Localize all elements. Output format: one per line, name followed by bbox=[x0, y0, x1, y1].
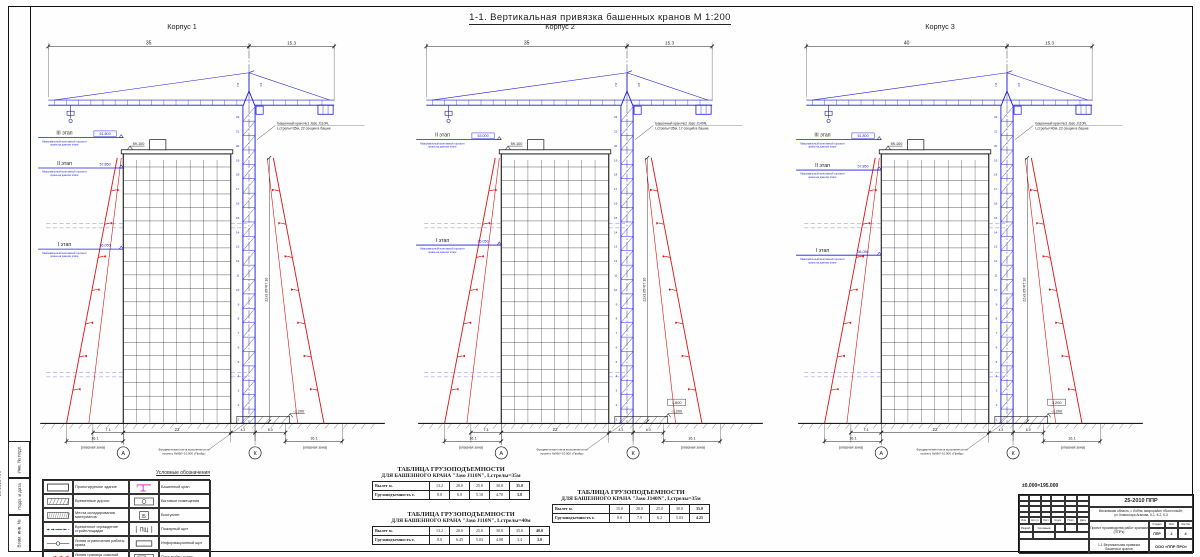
svg-text:22: 22 bbox=[553, 427, 558, 432]
wc-symbol-icon: Б bbox=[131, 510, 157, 521]
table-cell: 40.0 bbox=[530, 526, 550, 535]
table-cell: 5.10 bbox=[470, 490, 490, 499]
svg-text:крана на данном этапе: крана на данном этапе bbox=[50, 255, 79, 258]
load-table-subtitle: ДЛЯ БАШЕННОГО КРАНА "Jaso J140N", Lстрел… bbox=[552, 496, 710, 502]
svg-text:I этап: I этап bbox=[58, 242, 72, 248]
svg-text:1.800: 1.800 bbox=[672, 401, 682, 405]
svg-text:14: 14 bbox=[994, 230, 998, 234]
svg-text:4: 4 bbox=[996, 374, 998, 378]
svg-text:крана на данном этапе: крана на данном этапе bbox=[50, 144, 79, 147]
svg-text:61.800: 61.800 bbox=[857, 134, 868, 138]
svg-text:20: 20 bbox=[994, 144, 998, 148]
frame-strip: Инв. № подл. bbox=[8, 441, 30, 478]
svg-text:13: 13 bbox=[614, 245, 618, 249]
svg-text:15: 15 bbox=[614, 216, 618, 220]
svg-text:17: 17 bbox=[236, 187, 240, 191]
svg-text:16: 16 bbox=[614, 202, 618, 206]
svg-text:4.3: 4.3 bbox=[999, 428, 1004, 432]
svg-text:7.1: 7.1 bbox=[863, 428, 868, 432]
table-cell: 7.9 bbox=[630, 513, 650, 522]
table-cell: 30.0 bbox=[490, 481, 510, 490]
svg-text:крана на данном этапе: крана на данном этапе bbox=[808, 146, 837, 149]
tb-cell bbox=[1055, 532, 1089, 540]
building bbox=[121, 140, 233, 424]
svg-text:40: 40 bbox=[904, 41, 910, 47]
svg-text:2: 2 bbox=[238, 403, 240, 407]
svg-text:6.0: 6.0 bbox=[646, 428, 651, 432]
svg-text:59.100: 59.100 bbox=[891, 142, 903, 146]
svg-text:7.1: 7.1 bbox=[105, 428, 110, 432]
svg-text:III этап: III этап bbox=[56, 131, 72, 137]
crane-symbol-icon bbox=[131, 482, 157, 493]
svg-text:10: 10 bbox=[614, 288, 618, 292]
svg-text:59.100: 59.100 bbox=[511, 142, 523, 146]
svg-text:4: 4 bbox=[238, 374, 240, 378]
load-table-subtitle: ДЛЯ БАШЕННОГО КРАНА "Jaso J110N", Lстрел… bbox=[372, 473, 530, 479]
table-cell: 25.0 bbox=[470, 526, 490, 535]
load-table-3: ТАБЛИЦА ГРУЗОПОДЪЕМНОСТИДЛЯ БАШЕННОГО КР… bbox=[552, 489, 710, 523]
svg-text:7.8: 7.8 bbox=[994, 82, 998, 87]
svg-text:I этап: I этап bbox=[436, 238, 450, 244]
svg-text:36.050: 36.050 bbox=[857, 250, 868, 254]
tb-cell bbox=[1033, 532, 1055, 540]
legend-label: Линия ограничения работы крана bbox=[73, 536, 129, 550]
svg-text:18: 18 bbox=[236, 173, 240, 177]
svg-text:57.850: 57.850 bbox=[99, 163, 110, 167]
rev-header: №док. bbox=[1051, 517, 1065, 524]
table-cell: 5.03 bbox=[470, 535, 490, 544]
svg-text:12: 12 bbox=[994, 259, 998, 263]
svg-text:22: 22 bbox=[933, 427, 938, 432]
object-name: Московская область, г. Лобня, микрорайон… bbox=[1089, 507, 1193, 521]
table-cell: 4.25 bbox=[690, 513, 710, 522]
stage-value: ППР bbox=[1149, 528, 1165, 539]
svg-text:21: 21 bbox=[994, 130, 998, 134]
svg-text:18: 18 bbox=[994, 173, 998, 177]
corpus-3: Корпус 34015.359.10012345678910111213141… bbox=[788, 20, 1153, 467]
svg-text:21: 21 bbox=[614, 130, 618, 134]
svg-text:2: 2 bbox=[996, 403, 998, 407]
svg-text:7: 7 bbox=[616, 331, 618, 335]
table-cell: 6.0 bbox=[450, 490, 470, 499]
svg-text:-2.200: -2.200 bbox=[1051, 410, 1062, 414]
svg-text:А: А bbox=[121, 451, 125, 457]
svg-text:6: 6 bbox=[996, 345, 998, 349]
load-table-grid: Вылет м.15.020.025.030.035.0Грузоподъемн… bbox=[552, 504, 710, 523]
svg-text:4.3: 4.3 bbox=[241, 428, 246, 432]
svg-text:9: 9 bbox=[996, 302, 998, 306]
table-row-label: Вылет м. bbox=[553, 504, 610, 513]
legend-label: Бытовые помещения bbox=[159, 494, 211, 508]
table-cell: 8.0 bbox=[610, 513, 630, 522]
svg-text:1: 1 bbox=[616, 417, 618, 421]
table-cell: 30.0 bbox=[670, 504, 690, 513]
fire-symbol-icon: ПЩ bbox=[131, 524, 157, 535]
svg-text:Максимальный монтажный горизон: Максимальный монтажный горизонт bbox=[420, 247, 465, 251]
svg-text:(опасная зона): (опасная зона) bbox=[81, 445, 105, 449]
svg-text:8: 8 bbox=[616, 317, 618, 321]
table-cell: 13.2 bbox=[430, 481, 450, 490]
project-code: 25-2010 ППР bbox=[1089, 495, 1193, 507]
svg-text:I этап: I этап bbox=[816, 248, 830, 254]
svg-text:22: 22 bbox=[994, 115, 998, 119]
table-cell: 8.0 bbox=[430, 535, 450, 544]
svg-text:-2.200: -2.200 bbox=[293, 410, 304, 414]
svg-text:3: 3 bbox=[238, 389, 240, 393]
svg-text:проекту №96/У-10.000 «Прайд»: проекту №96/У-10.000 «Прайд» bbox=[163, 451, 206, 455]
sheet-label: Лист bbox=[1165, 521, 1178, 528]
legend-symbol bbox=[43, 550, 73, 557]
svg-text:Башенный кран №2 Jaso J140N,: Башенный кран №2 Jaso J140N, bbox=[655, 121, 707, 125]
svg-text:Максимальный монтажный горизон: Максимальный монтажный горизонт bbox=[800, 172, 845, 176]
table-row-label: Грузоподъемность т. bbox=[553, 513, 610, 522]
table-cell: 6.45 bbox=[450, 535, 470, 544]
frame-strip-label: Инв. № подл. bbox=[17, 445, 22, 473]
building bbox=[879, 140, 991, 424]
fence-symbol-icon bbox=[45, 524, 71, 535]
legend-symbol bbox=[43, 494, 73, 508]
info-symbol-icon bbox=[131, 538, 157, 549]
sheet-number: 2 bbox=[1165, 528, 1178, 539]
svg-text:16.1: 16.1 bbox=[91, 437, 98, 441]
svg-text:Б: Б bbox=[142, 513, 146, 519]
limit-symbol-icon bbox=[45, 538, 71, 549]
tb-cell bbox=[1077, 524, 1089, 532]
table-cell: 6.2 bbox=[650, 513, 670, 522]
svg-text:7.8: 7.8 bbox=[236, 82, 240, 87]
svg-text:-2.200: -2.200 bbox=[671, 410, 682, 414]
legend-symbol: Б bbox=[129, 508, 159, 522]
svg-text:14: 14 bbox=[614, 230, 618, 234]
tb-cell bbox=[1055, 524, 1065, 532]
svg-text:8: 8 bbox=[238, 317, 240, 321]
frame-strips: Инв. № подл.Подп. и датаВзам. инв. № bbox=[8, 441, 30, 552]
svg-text:3.200: 3.200 bbox=[1052, 401, 1062, 405]
svg-text:57.850: 57.850 bbox=[857, 165, 868, 169]
rev-header: Изм. bbox=[1019, 517, 1029, 524]
svg-text:(опасная зона): (опасная зона) bbox=[839, 445, 863, 449]
svg-text:ПЩ: ПЩ bbox=[140, 527, 149, 533]
svg-text:15: 15 bbox=[994, 216, 998, 220]
svg-text:10: 10 bbox=[236, 288, 240, 292]
svg-text:11: 11 bbox=[994, 273, 997, 277]
svg-text:20: 20 bbox=[236, 144, 240, 148]
legend-symbol bbox=[129, 494, 159, 508]
load-table-subtitle: ДЛЯ БАШЕННОГО КРАНА "Jaso J110N", Lстрел… bbox=[372, 518, 550, 524]
legend-label: Места складирования материалов bbox=[73, 508, 129, 522]
svg-text:крана на данном этапе: крана на данном этапе bbox=[428, 251, 457, 254]
svg-text:10: 10 bbox=[994, 288, 998, 292]
svg-text:Максимальный монтажный горизон: Максимальный монтажный горизонт bbox=[420, 141, 465, 145]
svg-text:Максимальный монтажный горизон: Максимальный монтажный горизонт bbox=[42, 251, 87, 255]
table-cell: 13.2 bbox=[430, 526, 450, 535]
svg-text:59.100: 59.100 bbox=[133, 142, 145, 146]
svg-text:III этап: III этап bbox=[814, 133, 830, 139]
table-row-label: Вылет м. bbox=[373, 526, 430, 535]
tb-cell bbox=[1019, 532, 1033, 540]
svg-text:15.3: 15.3 bbox=[1045, 41, 1054, 46]
corpus-1: Корпус 13515.359.10012345678910111213141… bbox=[30, 20, 395, 467]
svg-text:6.0: 6.0 bbox=[1026, 428, 1031, 432]
legend-label: Временное ограждение стройплощадки bbox=[73, 522, 129, 536]
legend-symbol bbox=[43, 522, 73, 536]
svg-text:9: 9 bbox=[238, 302, 240, 306]
road-symbol-icon bbox=[45, 496, 71, 507]
svg-text:15: 15 bbox=[236, 216, 240, 220]
svg-text:II этап: II этап bbox=[435, 133, 450, 139]
frame-strip: Взам. инв. № bbox=[8, 515, 30, 552]
svg-text:17: 17 bbox=[994, 187, 998, 191]
drawing-sheet: Инв. № подл.Подп. и датаВзам. инв. № 25-… bbox=[0, 0, 1200, 557]
svg-text:63.000: 63.000 bbox=[477, 134, 488, 138]
svg-text:Корпус 2: Корпус 2 bbox=[545, 22, 575, 31]
object-name-line: ул. Комиссара Агапова, К-1, К-2, К-3 bbox=[1114, 514, 1167, 518]
tb-cell bbox=[1065, 524, 1077, 532]
svg-text:19: 19 bbox=[614, 158, 618, 162]
load-table-grid: Вылет м.13.220.025.030.035.0Грузоподъемн… bbox=[372, 481, 530, 500]
svg-text:проекту №96/У-10.000 «Прайд»: проекту №96/У-10.000 «Прайд» bbox=[541, 451, 584, 455]
svg-text:16.1: 16.1 bbox=[688, 437, 695, 441]
svg-text:3.8: 3.8 bbox=[259, 82, 263, 87]
load-table-title: ТАБЛИЦА ГРУЗОПОДЪЕМНОСТИ bbox=[372, 511, 550, 518]
svg-text:16: 16 bbox=[236, 202, 240, 206]
svg-text:(опасная зона): (опасная зона) bbox=[303, 445, 327, 449]
corpus-drawing: Корпус 13515.359.10012345678910111213141… bbox=[30, 20, 395, 462]
svg-text:21: 21 bbox=[236, 130, 240, 134]
svg-text:11: 11 bbox=[236, 273, 239, 277]
svg-text:3: 3 bbox=[616, 389, 618, 393]
table-cell: 3.4 bbox=[510, 535, 530, 544]
svg-text:15.3: 15.3 bbox=[287, 41, 296, 46]
svg-text:35: 35 bbox=[524, 41, 530, 47]
legend-label: Проектируемое здание bbox=[73, 480, 129, 494]
tb-cell bbox=[1019, 539, 1089, 554]
developer-name: Соловьев bbox=[1033, 524, 1055, 532]
storage-symbol-icon bbox=[45, 510, 71, 521]
rev-header: Кол.уч bbox=[1029, 517, 1041, 524]
svg-text:II этап: II этап bbox=[815, 163, 830, 169]
svg-text:(опасная зона): (опасная зона) bbox=[681, 445, 705, 449]
legend-label: Биотуалет bbox=[159, 508, 211, 522]
legend-label: Информационный щит bbox=[159, 536, 211, 550]
svg-text:(опасная зона): (опасная зона) bbox=[1061, 445, 1085, 449]
datum-note: ±0.000=195.000 bbox=[1022, 483, 1058, 489]
svg-text:(опасная зона): (опасная зона) bbox=[459, 445, 483, 449]
rev-header: Подп. bbox=[1065, 517, 1077, 524]
title-block: 25-2010 ППРМосковская область, г. Лобня,… bbox=[1018, 494, 1194, 553]
legend-symbol bbox=[43, 480, 73, 494]
legend-label: Пожарный щит bbox=[159, 522, 211, 536]
svg-text:Максимальный монтажный горизон: Максимальный монтажный горизонт bbox=[800, 141, 845, 145]
table-cell: 5.03 bbox=[670, 513, 690, 522]
svg-text:7: 7 bbox=[238, 331, 240, 335]
svg-text:4: 4 bbox=[616, 374, 618, 378]
svg-text:20: 20 bbox=[614, 144, 618, 148]
svg-text:8: 8 bbox=[996, 317, 998, 321]
developer-label: Разраб. bbox=[1019, 524, 1033, 532]
svg-text:крана на данном этапе: крана на данном этапе bbox=[50, 174, 79, 177]
svg-text:19: 19 bbox=[236, 158, 240, 162]
corpus-2: Корпус 23515.359.10012345678910111213141… bbox=[408, 20, 773, 467]
svg-text:3.8: 3.8 bbox=[637, 82, 641, 87]
svg-text:Максимальный монтажный горизон: Максимальный монтажный горизонт bbox=[800, 257, 845, 261]
svg-text:проекту №96/У-10.000 «Прайд»: проекту №96/У-10.000 «Прайд» bbox=[921, 451, 964, 455]
svg-text:Башенный кран №1 Jaso J110N,: Башенный кран №1 Jaso J110N, bbox=[277, 121, 329, 125]
rev-header: Лист bbox=[1041, 517, 1051, 524]
table-cell: 25.0 bbox=[470, 481, 490, 490]
svg-text:Корпус 1: Корпус 1 bbox=[167, 22, 197, 31]
load-table-title: ТАБЛИЦА ГРУЗОПОДЪЕМНОСТИ bbox=[552, 489, 710, 496]
corpus-drawing: Корпус 34015.359.10012345678910111213141… bbox=[788, 20, 1153, 462]
table-row-label: Грузоподъемность т. bbox=[373, 535, 430, 544]
svg-text:Lстрелы=35м, 17 секций в башне: Lстрелы=35м, 17 секций в башне bbox=[655, 126, 708, 130]
table-cell: 15.0 bbox=[610, 504, 630, 513]
svg-text:22: 22 bbox=[236, 115, 240, 119]
svg-text:1: 1 bbox=[238, 417, 240, 421]
danger-symbol-icon bbox=[45, 552, 71, 557]
load-table-title: ТАБЛИЦА ГРУЗОПОДЪЕМНОСТИ bbox=[372, 466, 530, 473]
svg-text:А: А bbox=[879, 451, 883, 457]
stage-label: Стадия bbox=[1149, 521, 1165, 528]
load-table-1: ТАБЛИЦА ГРУЗОПОДЪЕМНОСТИДЛЯ БАШЕННОГО КР… bbox=[372, 466, 530, 500]
svg-text:36.050: 36.050 bbox=[477, 240, 488, 244]
household-symbol-icon bbox=[131, 496, 157, 507]
svg-text:А: А bbox=[499, 451, 503, 457]
legend-symbol bbox=[129, 550, 159, 557]
company-name: ООО «ППР ПРО» bbox=[1149, 539, 1193, 554]
svg-text:11: 11 bbox=[614, 273, 617, 277]
svg-text:16.1: 16.1 bbox=[469, 437, 476, 441]
svg-text:22: 22 bbox=[175, 427, 180, 432]
svg-text:16: 16 bbox=[994, 202, 998, 206]
svg-text:15.3: 15.3 bbox=[665, 41, 674, 46]
svg-text:22х3.05=67.10: 22х3.05=67.10 bbox=[264, 278, 268, 302]
svg-text:3: 3 bbox=[996, 389, 998, 393]
table-cell: 20.0 bbox=[450, 526, 470, 535]
svg-text:II этап: II этап bbox=[57, 161, 72, 167]
table-cell: 3.8 bbox=[510, 490, 530, 499]
svg-text:6: 6 bbox=[238, 345, 240, 349]
svg-text:35: 35 bbox=[146, 41, 152, 47]
legend-label: Временные дороги bbox=[73, 494, 129, 508]
sheet-name: 1-1 Вертикальная привязка башенных крано… bbox=[1089, 539, 1149, 554]
frame-strip: Подп. и дата bbox=[8, 478, 30, 515]
table-cell: 35.0 bbox=[690, 504, 710, 513]
svg-text:12: 12 bbox=[236, 259, 240, 263]
svg-text:Lстрелы=40м, 22 секции в башне: Lстрелы=40м, 22 секции в башне bbox=[1035, 126, 1088, 130]
table-cell: 30.0 bbox=[490, 526, 510, 535]
legend-label: Линия границы опасной зоны работы крана bbox=[73, 550, 129, 557]
table-row-label: Вылет м. bbox=[373, 481, 430, 490]
svg-text:4.3: 4.3 bbox=[619, 428, 624, 432]
wash-symbol-icon bbox=[131, 552, 157, 557]
table-cell: 4.70 bbox=[490, 490, 510, 499]
svg-text:7.8: 7.8 bbox=[614, 82, 618, 87]
legend-grid: Проектируемое зданиеБашенный кранВременн… bbox=[42, 479, 210, 557]
table-cell: 20.0 bbox=[450, 481, 470, 490]
svg-text:61.800: 61.800 bbox=[99, 132, 110, 136]
svg-text:13: 13 bbox=[236, 245, 240, 249]
legend-symbol: ПЩ bbox=[129, 522, 159, 536]
svg-text:5: 5 bbox=[616, 360, 618, 364]
svg-text:6.0: 6.0 bbox=[268, 428, 273, 432]
svg-text:14: 14 bbox=[236, 230, 240, 234]
table-cell: 8.0 bbox=[430, 490, 450, 499]
svg-text:9: 9 bbox=[616, 302, 618, 306]
table-cell: 20.0 bbox=[630, 504, 650, 513]
svg-text:Корпус 3: Корпус 3 bbox=[925, 22, 955, 31]
doc-type: Проект производства работ кранами (ППРк) bbox=[1089, 521, 1149, 539]
sheets-label: Листов bbox=[1178, 521, 1193, 528]
load-table-2: ТАБЛИЦА ГРУЗОПОДЪЕМНОСТИДЛЯ БАШЕННОГО КР… bbox=[372, 511, 550, 545]
svg-text:19: 19 bbox=[994, 158, 998, 162]
sheets-total: 4 bbox=[1178, 528, 1193, 539]
svg-text:крана на данном этапе: крана на данном этапе bbox=[428, 146, 457, 149]
legend-title: Условные обозначения bbox=[156, 470, 210, 476]
load-table-grid: Вылет м.13.220.025.030.035.040.0Грузопод… bbox=[372, 526, 550, 545]
legend-symbol bbox=[129, 480, 159, 494]
svg-text:Lстрелы=35м, 22 секции в башне: Lстрелы=35м, 22 секции в башне bbox=[277, 126, 330, 130]
table-row-label: Грузоподъемность т. bbox=[373, 490, 430, 499]
table-cell: 35.0 bbox=[510, 526, 530, 535]
legend-label: Пост мойки колес bbox=[159, 550, 211, 557]
legend-symbol bbox=[43, 508, 73, 522]
corpus-drawing: Корпус 23515.359.10012345678910111213141… bbox=[408, 20, 773, 462]
svg-text:3.8: 3.8 bbox=[1017, 82, 1021, 87]
table-cell: 3.0 bbox=[530, 535, 550, 544]
svg-text:16.1: 16.1 bbox=[1068, 437, 1075, 441]
svg-text:1: 1 bbox=[996, 417, 998, 421]
table-cell: 35.0 bbox=[510, 481, 530, 490]
legend: Условные обозначения Проектируемое здани… bbox=[42, 479, 210, 557]
frame-strip-label: Подп. и дата bbox=[17, 483, 22, 510]
edge-code: 25-2010 ППР bbox=[0, 469, 2, 496]
svg-text:5: 5 bbox=[996, 360, 998, 364]
svg-text:17: 17 bbox=[614, 187, 618, 191]
legend-symbol bbox=[129, 536, 159, 550]
frame-strip-label: Взам. инв. № bbox=[17, 520, 22, 548]
rev-header: Дата bbox=[1077, 517, 1089, 524]
svg-text:Башенный кран №3 Jaso J110N,: Башенный кран №3 Jaso J110N, bbox=[1035, 121, 1087, 125]
svg-text:2: 2 bbox=[616, 403, 618, 407]
svg-text:12: 12 bbox=[614, 259, 618, 263]
legend-symbol bbox=[43, 536, 73, 550]
svg-text:крана на данном этапе: крана на данном этапе bbox=[808, 176, 837, 179]
svg-text:13: 13 bbox=[994, 245, 998, 249]
table-cell: 25.0 bbox=[650, 504, 670, 513]
svg-text:7: 7 bbox=[996, 331, 998, 335]
svg-text:5: 5 bbox=[238, 360, 240, 364]
svg-text:22х3.05=67.10: 22х3.05=67.10 bbox=[1022, 278, 1026, 302]
svg-text:Максимальный монтажный горизон: Максимальный монтажный горизонт bbox=[42, 139, 87, 143]
bldg-symbol-icon bbox=[45, 482, 71, 493]
svg-text:7.1: 7.1 bbox=[483, 428, 488, 432]
svg-text:крана на данном этапе: крана на данном этапе bbox=[808, 261, 837, 264]
svg-text:22х3.05=67.10: 22х3.05=67.10 bbox=[642, 278, 646, 302]
svg-text:16.1: 16.1 bbox=[310, 437, 317, 441]
building bbox=[499, 140, 611, 424]
svg-text:18: 18 bbox=[614, 173, 618, 177]
svg-text:Максимальный монтажный горизон: Максимальный монтажный горизонт bbox=[42, 170, 87, 174]
legend-label: Башенный кран bbox=[159, 480, 211, 494]
table-cell: 4.08 bbox=[490, 535, 510, 544]
svg-text:16.1: 16.1 bbox=[849, 437, 856, 441]
svg-text:36.050: 36.050 bbox=[99, 244, 110, 248]
svg-text:22: 22 bbox=[614, 115, 618, 119]
svg-text:6: 6 bbox=[616, 345, 618, 349]
